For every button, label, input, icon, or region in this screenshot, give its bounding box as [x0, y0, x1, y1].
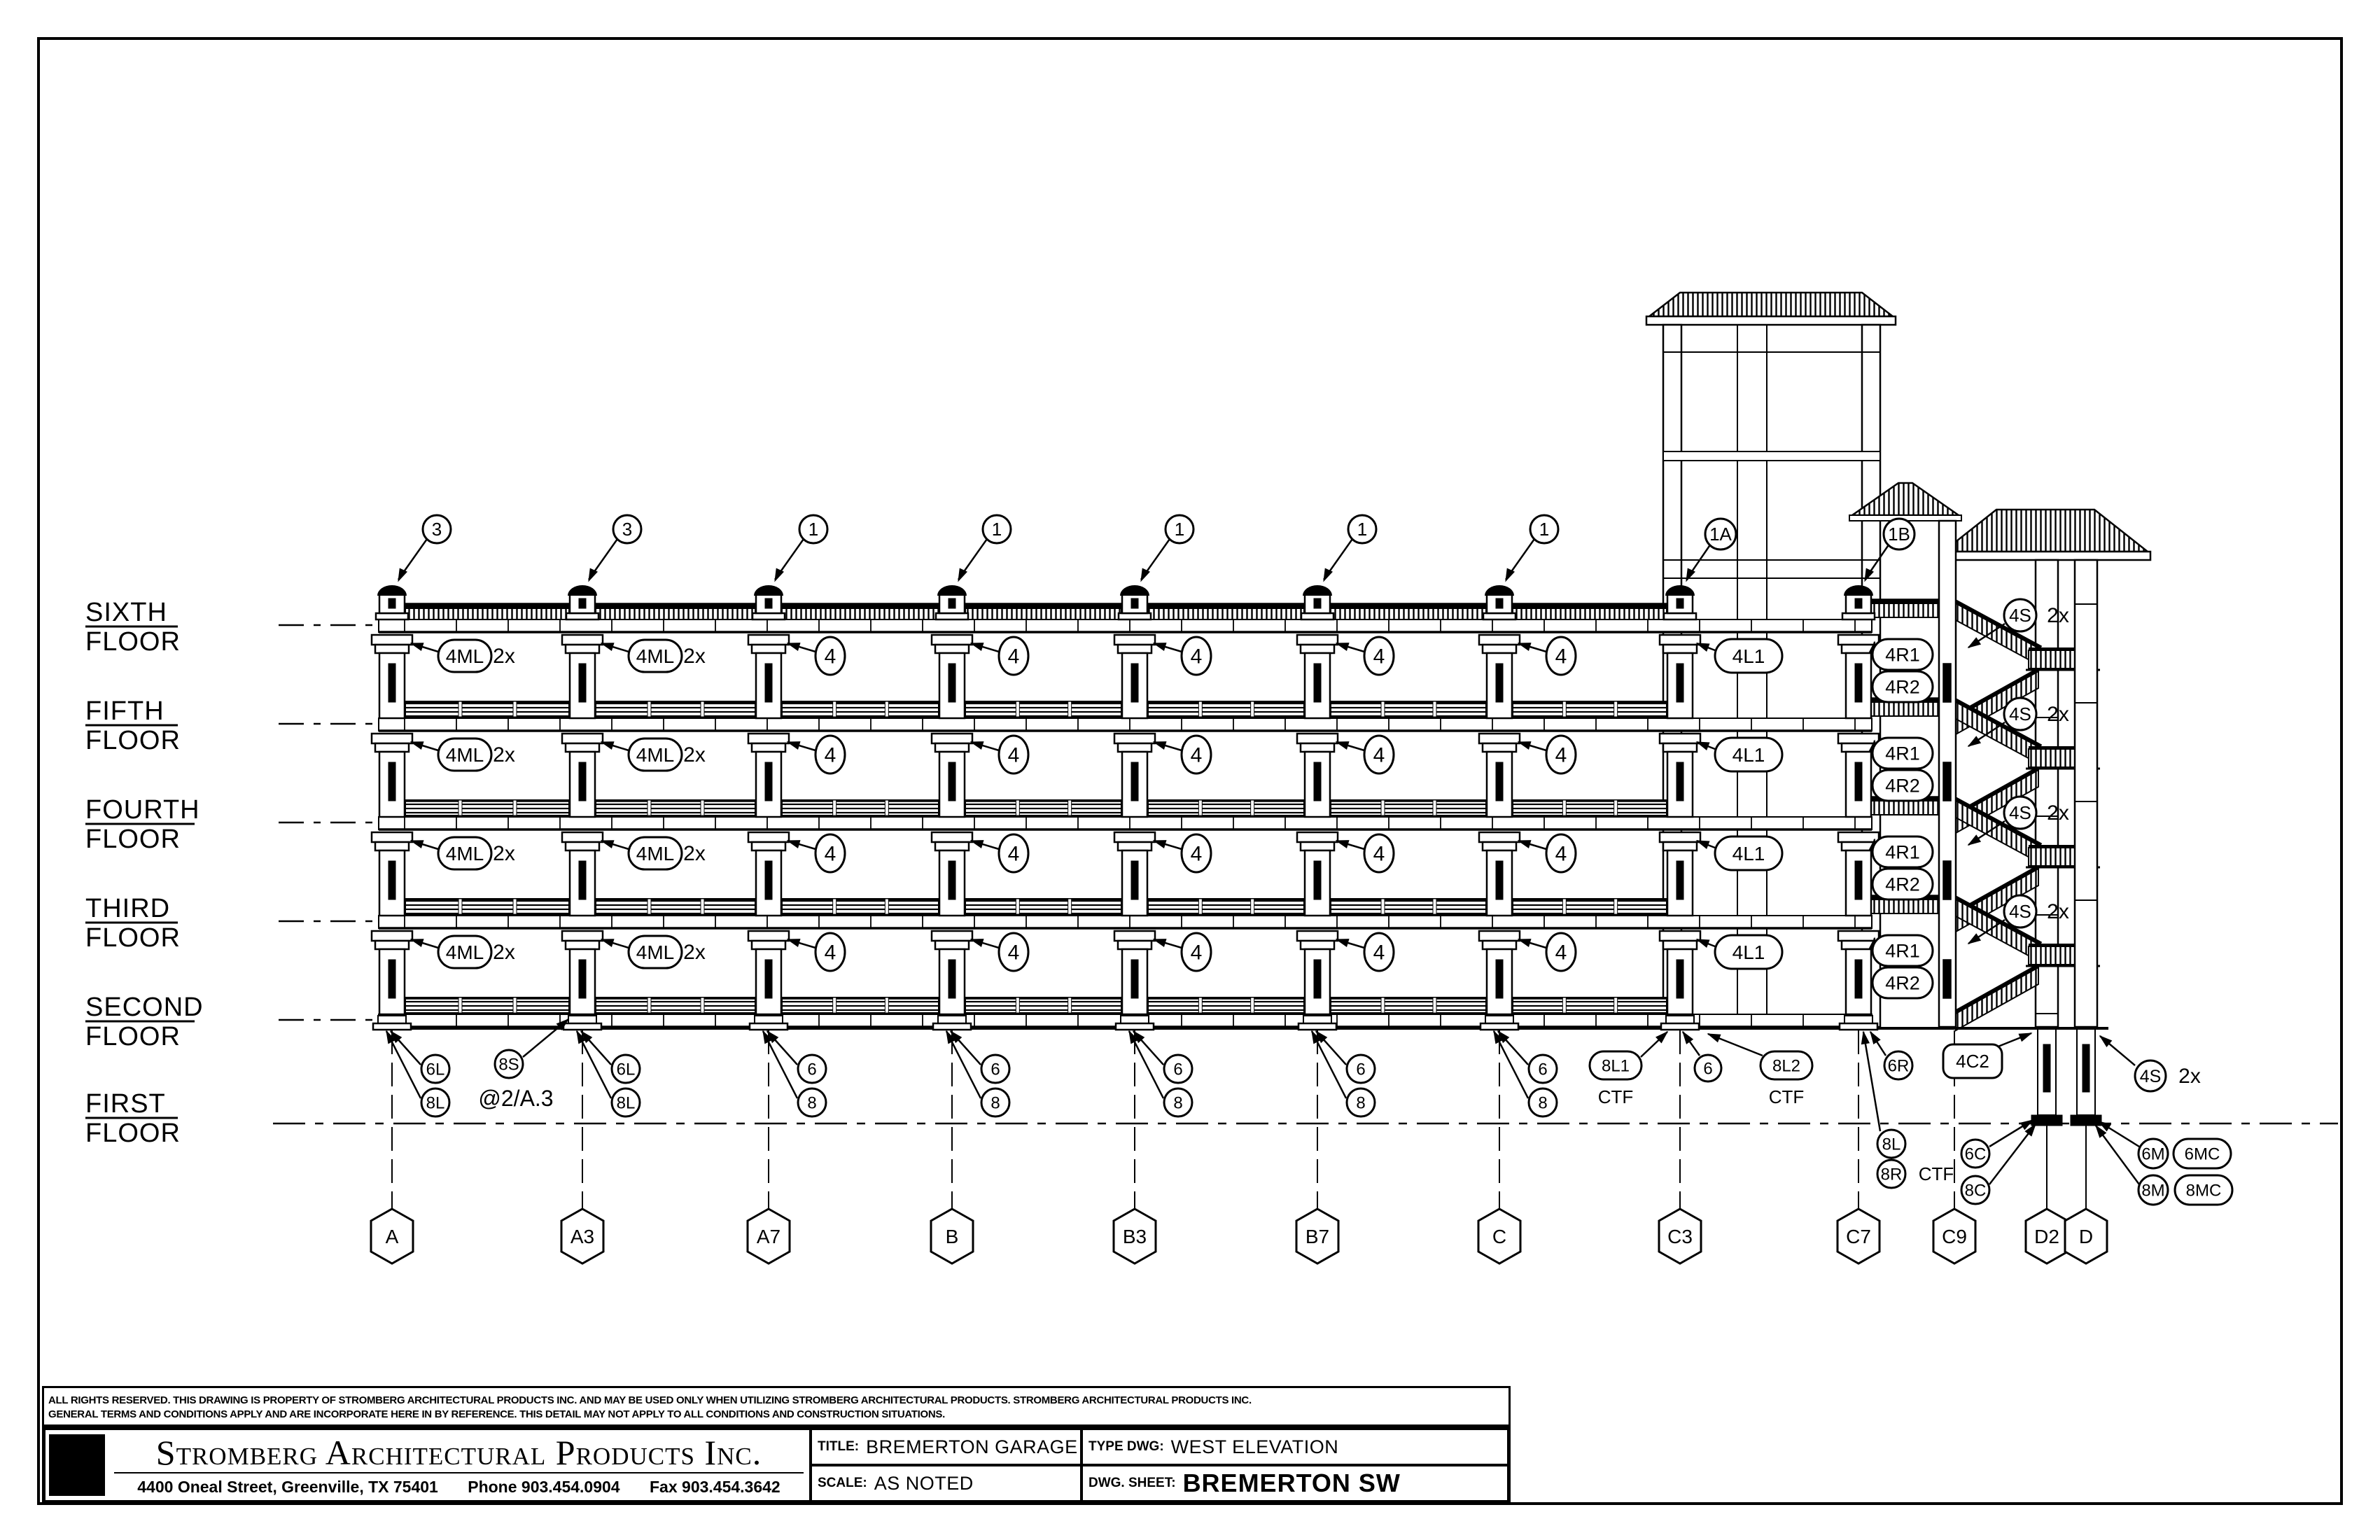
svg-text:B7: B7: [1305, 1226, 1329, 1247]
scale-cell: SCALE: AS NOTED: [812, 1466, 1080, 1500]
svg-text:1: 1: [1357, 519, 1367, 540]
title-cell: TITLE: BREMERTON GARAGE: [812, 1430, 1080, 1466]
svg-text:4ML: 4ML: [636, 941, 674, 963]
svg-text:1: 1: [1175, 519, 1184, 540]
callout-4ML: 4ML2x: [601, 640, 706, 672]
sheet-name-label: DWG. SHEET:: [1088, 1476, 1176, 1491]
title-scale-section: TITLE: BREMERTON GARAGE SCALE: AS NOTED: [812, 1430, 1083, 1500]
svg-text:FIFTH: FIFTH: [85, 696, 164, 726]
scale-label: SCALE:: [818, 1476, 867, 1491]
svg-text:2x: 2x: [683, 941, 706, 964]
svg-text:8: 8: [990, 1093, 1000, 1112]
floor-label-sixth: SIXTHFLOOR: [85, 598, 377, 657]
grid-bubble-B7: B7: [1296, 1209, 1338, 1263]
svg-text:3: 3: [622, 519, 632, 540]
callout-6R: 6R: [1870, 1032, 1912, 1079]
svg-text:FLOOR: FLOOR: [85, 923, 181, 953]
top-marker-1: 1: [958, 515, 1011, 581]
callout-4: 4: [971, 933, 1028, 971]
callout-8L1: 8L1CTF: [1590, 1032, 1667, 1107]
drawing-sheet: { "sheet": { "disclaimer_line1": "ALL RI…: [0, 0, 2380, 1540]
callout-4L1: 4L1: [1697, 836, 1782, 870]
callout-4ML: 4ML2x: [411, 936, 515, 968]
svg-text:4: 4: [825, 843, 836, 866]
svg-text:4ML: 4ML: [446, 744, 484, 766]
callout-4ML: 4ML2x: [601, 837, 706, 869]
svg-text:CTF: CTF: [1598, 1086, 1634, 1107]
svg-text:A: A: [386, 1226, 399, 1247]
base-pair-B: 68: [946, 1031, 1009, 1116]
grid-bubble-C7: C7: [1837, 1209, 1879, 1263]
callout-4: 4: [1518, 834, 1576, 872]
grid-bubble-B3: B3: [1114, 1209, 1156, 1263]
svg-text:4: 4: [1008, 645, 1020, 668]
svg-text:4: 4: [1373, 941, 1385, 965]
svg-text:2x: 2x: [493, 743, 515, 766]
top-marker-1: 1: [1324, 515, 1376, 581]
callout-4: 4: [1336, 637, 1394, 675]
callout-4: 4: [1154, 834, 1211, 872]
company-section: Stromberg Architectural Products Inc. 44…: [108, 1430, 812, 1500]
top-marker-3: 3: [398, 515, 451, 581]
svg-text:4ML: 4ML: [636, 645, 674, 667]
grid-bubble-A3: A3: [561, 1209, 603, 1263]
callout-8L2: 8L2CTF: [1708, 1034, 1812, 1107]
svg-text:4L1: 4L1: [1732, 941, 1765, 963]
svg-text:2x: 2x: [2178, 1065, 2201, 1088]
svg-text:4ML: 4ML: [636, 843, 674, 864]
svg-text:4: 4: [1191, 941, 1203, 965]
svg-text:FLOOR: FLOOR: [85, 1119, 181, 1148]
scale-value: AS NOTED: [874, 1473, 974, 1494]
callout-4: 4: [1518, 736, 1576, 773]
svg-text:4: 4: [1555, 941, 1567, 965]
callout-4: 4: [1154, 637, 1211, 675]
callout-4: 4: [971, 834, 1028, 872]
svg-text:4S: 4S: [2009, 802, 2031, 823]
company-fax: Fax 903.454.3642: [650, 1478, 780, 1496]
story-callouts: 4ML2x4ML2x444444L14R14R24S2x4ML2x4ML2x44…: [411, 599, 2069, 998]
top-marker-1: 1: [775, 515, 827, 581]
top-markers: 33111111A1B: [398, 515, 1914, 581]
svg-text:6: 6: [1356, 1060, 1365, 1079]
sheet-name-cell: DWG. SHEET: BREMERTON SW: [1083, 1466, 1507, 1500]
floor-label-fourth: FOURTHFLOOR: [85, 795, 377, 854]
svg-text:1: 1: [808, 519, 818, 540]
callout-6M: 6M6MC8M8MC: [2096, 1121, 2232, 1205]
callout-4: 4: [1154, 736, 1211, 773]
callout-4: 4: [787, 637, 845, 675]
svg-text:4: 4: [825, 744, 836, 767]
svg-text:4: 4: [1008, 843, 1020, 866]
callout-4L1: 4L1: [1697, 639, 1782, 673]
svg-text:8L2: 8L2: [1772, 1056, 1800, 1075]
callout-4ML: 4ML2x: [411, 738, 515, 771]
svg-text:2x: 2x: [2047, 703, 2069, 726]
svg-text:1A: 1A: [1709, 524, 1732, 545]
svg-text:4L1: 4L1: [1732, 645, 1765, 667]
callout-4ML: 4ML2x: [601, 738, 706, 771]
svg-text:2x: 2x: [2047, 801, 2069, 825]
callout-4: 4: [787, 736, 845, 773]
grid-bubble-A: A: [371, 1209, 413, 1263]
callout-4: 4: [971, 637, 1028, 675]
svg-text:8C: 8C: [1965, 1181, 1987, 1200]
floor-label-first: FIRSTFLOOR: [85, 1089, 181, 1148]
svg-text:4ML: 4ML: [446, 941, 484, 963]
svg-text:CTF: CTF: [1769, 1086, 1805, 1107]
base-pair-C: 68: [1494, 1031, 1557, 1116]
top-marker-1: 1: [1141, 515, 1193, 581]
svg-text:4L1: 4L1: [1732, 744, 1765, 766]
disclaimer-line-1: ALL RIGHTS RESERVED. THIS DRAWING IS PRO…: [48, 1394, 1504, 1408]
svg-text:A3: A3: [570, 1226, 594, 1247]
svg-text:6M: 6M: [2141, 1144, 2164, 1163]
svg-text:THIRD: THIRD: [85, 894, 170, 923]
svg-text:2x: 2x: [683, 743, 706, 766]
base-pair-A3: 6L8L: [577, 1031, 640, 1116]
callout-4L1: 4L1: [1697, 738, 1782, 771]
callout-4ML: 4ML2x: [601, 936, 706, 968]
top-marker-3: 3: [589, 515, 641, 581]
svg-text:8L1: 8L1: [1602, 1056, 1630, 1075]
svg-text:6: 6: [1538, 1060, 1547, 1079]
svg-text:2x: 2x: [493, 645, 515, 668]
svg-text:4: 4: [825, 941, 836, 965]
base-pair-A: 6L8L: [386, 1031, 449, 1116]
callout-4: 4: [787, 933, 845, 971]
logo-square-icon: [49, 1434, 105, 1496]
svg-text:FLOOR: FLOOR: [85, 726, 181, 755]
svg-text:8: 8: [1356, 1093, 1365, 1112]
callout-4L1: 4L1: [1697, 935, 1782, 969]
svg-text:6: 6: [807, 1060, 816, 1079]
callout-4: 4: [1336, 834, 1394, 872]
svg-text:6R: 6R: [1888, 1056, 1910, 1075]
svg-text:4ML: 4ML: [446, 843, 484, 864]
svg-text:6: 6: [990, 1060, 1000, 1079]
base-pair-B7: 68: [1312, 1031, 1375, 1116]
svg-text:4: 4: [1555, 645, 1567, 668]
svg-text:2x: 2x: [683, 645, 706, 668]
svg-text:8MC: 8MC: [2186, 1181, 2222, 1200]
company-name: Stromberg Architectural Products Inc.: [114, 1434, 804, 1473]
svg-text:2x: 2x: [2047, 604, 2069, 627]
floor-label-second: SECONDFLOOR: [85, 993, 377, 1051]
svg-text:4: 4: [1555, 744, 1567, 767]
svg-text:2x: 2x: [493, 842, 515, 865]
svg-text:CTF: CTF: [1919, 1163, 1954, 1184]
callout-4: 4: [1518, 637, 1576, 675]
callout-4: 4: [787, 834, 845, 872]
svg-text:SIXTH: SIXTH: [85, 598, 167, 627]
svg-text:4: 4: [1191, 744, 1203, 767]
svg-text:6: 6: [1173, 1060, 1182, 1079]
svg-text:4: 4: [825, 645, 836, 668]
svg-text:4: 4: [1373, 843, 1385, 866]
svg-text:8S: 8S: [498, 1055, 519, 1074]
svg-text:FIRST: FIRST: [85, 1089, 166, 1119]
top-marker-1A: 1A: [1686, 519, 1736, 581]
svg-text:FLOOR: FLOOR: [85, 627, 181, 657]
base-pair-A7: 68: [763, 1031, 826, 1116]
callout-6C: 6C8C: [1961, 1120, 2036, 1204]
svg-text:6L: 6L: [426, 1060, 445, 1079]
company-address-row: 4400 Oneal Street, Greenville, TX 75401 …: [108, 1473, 809, 1497]
svg-text:4R2: 4R2: [1885, 775, 1920, 796]
svg-text:4R1: 4R1: [1885, 940, 1920, 961]
svg-text:4ML: 4ML: [446, 645, 484, 667]
svg-text:8M: 8M: [2141, 1181, 2164, 1200]
svg-text:C9: C9: [1942, 1226, 1967, 1247]
callout-4: 4: [1154, 933, 1211, 971]
svg-text:1: 1: [1539, 519, 1549, 540]
svg-text:4R1: 4R1: [1885, 743, 1920, 764]
svg-text:4: 4: [1008, 941, 1020, 965]
svg-text:4: 4: [1555, 843, 1567, 866]
callout-4: 4: [1336, 736, 1394, 773]
grid-bubble-A7: A7: [748, 1209, 790, 1263]
svg-text:C3: C3: [1667, 1226, 1693, 1247]
svg-text:8L: 8L: [1882, 1135, 1901, 1154]
disclaimer-line-2: GENERAL TERMS AND CONDITIONS APPLY AND A…: [48, 1408, 1504, 1422]
svg-text:2x: 2x: [2047, 900, 2069, 923]
svg-text:4R2: 4R2: [1885, 676, 1920, 697]
svg-text:D: D: [2079, 1226, 2093, 1247]
svg-text:FLOOR: FLOOR: [85, 1022, 181, 1051]
grid-bubble-B: B: [931, 1209, 973, 1263]
svg-text:4S: 4S: [2009, 703, 2031, 724]
svg-text:C7: C7: [1846, 1226, 1871, 1247]
svg-text:1: 1: [992, 519, 1002, 540]
svg-text:4R1: 4R1: [1885, 644, 1920, 665]
svg-text:4: 4: [1008, 744, 1020, 767]
svg-text:6MC: 6MC: [2185, 1144, 2220, 1163]
svg-text:8: 8: [807, 1093, 816, 1112]
svg-text:4S: 4S: [2140, 1067, 2162, 1086]
svg-text:C: C: [1492, 1226, 1506, 1247]
svg-text:B: B: [946, 1226, 959, 1247]
callout-4: 4: [1518, 933, 1576, 971]
top-marker-1: 1: [1506, 515, 1558, 581]
svg-text:3: 3: [432, 519, 442, 540]
svg-text:8L: 8L: [426, 1093, 445, 1112]
company-address: 4400 Oneal Street, Greenville, TX 75401: [137, 1478, 438, 1496]
svg-text:4R2: 4R2: [1885, 874, 1920, 895]
grid-bubble-C: C: [1478, 1209, 1520, 1263]
svg-text:4R2: 4R2: [1885, 972, 1920, 993]
callout-8S: 8S@2/A.3: [478, 1019, 568, 1111]
grid-bubble-C3: C3: [1659, 1209, 1701, 1263]
svg-text:2x: 2x: [683, 842, 706, 865]
sheet-name-value: BREMERTON SW: [1183, 1469, 1401, 1498]
svg-text:4S: 4S: [2009, 901, 2031, 922]
callout-4C2: 4C2: [1943, 1033, 2031, 1078]
type-dwg-label: TYPE DWG:: [1088, 1439, 1164, 1455]
svg-text:B3: B3: [1123, 1226, 1147, 1247]
svg-text:4S: 4S: [2009, 605, 2031, 626]
base-callouts: 6L8L6L8L68686868688S@2/A.38L1CTF68L2CTF6…: [386, 1019, 2232, 1205]
svg-text:8R: 8R: [1881, 1165, 1903, 1184]
svg-text:A7: A7: [757, 1226, 780, 1247]
type-dwg-value: WEST ELEVATION: [1171, 1436, 1339, 1458]
grid-bubble-D2: D2: [2026, 1209, 2068, 1263]
callout-4ML: 4ML2x: [411, 837, 515, 869]
title-label: TITLE:: [818, 1439, 859, 1455]
company-logo: [45, 1430, 108, 1500]
callout-4: 4: [971, 736, 1028, 773]
floor-label-third: THIRDFLOOR: [85, 894, 377, 953]
svg-text:4: 4: [1373, 645, 1385, 668]
company-phone: Phone 903.454.0904: [468, 1478, 619, 1496]
svg-text:@2/A.3: @2/A.3: [478, 1086, 553, 1111]
base-pair-B3: 68: [1129, 1031, 1192, 1116]
svg-text:4: 4: [1373, 744, 1385, 767]
svg-text:4ML: 4ML: [636, 744, 674, 766]
elevation-linework: AA3A7BB3B7CC3C7C9D2DSIXTHFLOORFIFTHFLOOR…: [0, 0, 2380, 1540]
svg-text:D2: D2: [2034, 1226, 2059, 1247]
svg-text:FOURTH: FOURTH: [85, 795, 200, 825]
title-block: Stromberg Architectural Products Inc. 44…: [42, 1427, 1511, 1504]
svg-text:SECOND: SECOND: [85, 993, 204, 1022]
floor-label-fifth: FIFTHFLOOR: [85, 696, 377, 755]
svg-text:8: 8: [1173, 1093, 1182, 1112]
svg-text:4R1: 4R1: [1885, 841, 1920, 862]
svg-text:4: 4: [1191, 843, 1203, 866]
svg-text:8L: 8L: [617, 1093, 636, 1112]
callout-4ML: 4ML2x: [411, 640, 515, 672]
svg-text:1B: 1B: [1888, 524, 1910, 545]
svg-text:4L1: 4L1: [1732, 843, 1765, 864]
grid-bubble-C9: C9: [1933, 1209, 1975, 1263]
disclaimer-box: ALL RIGHTS RESERVED. THIS DRAWING IS PRO…: [42, 1386, 1511, 1427]
svg-text:2x: 2x: [493, 941, 515, 964]
svg-text:4C2: 4C2: [1956, 1051, 1989, 1072]
svg-text:8: 8: [1538, 1093, 1547, 1112]
svg-text:FLOOR: FLOOR: [85, 825, 181, 854]
svg-text:6L: 6L: [617, 1060, 636, 1079]
callout-ground-4S: 4S2x: [2100, 1036, 2201, 1091]
type-sheet-section: TYPE DWG: WEST ELEVATION DWG. SHEET: BRE…: [1083, 1430, 1507, 1500]
svg-text:4: 4: [1191, 645, 1203, 668]
type-dwg-cell: TYPE DWG: WEST ELEVATION: [1083, 1430, 1507, 1466]
grid-bubble-D: D: [2065, 1209, 2107, 1263]
svg-text:6C: 6C: [1965, 1144, 1987, 1163]
svg-text:6: 6: [1703, 1059, 1712, 1078]
callout-4: 4: [1336, 933, 1394, 971]
title-value: BREMERTON GARAGE: [866, 1436, 1078, 1458]
